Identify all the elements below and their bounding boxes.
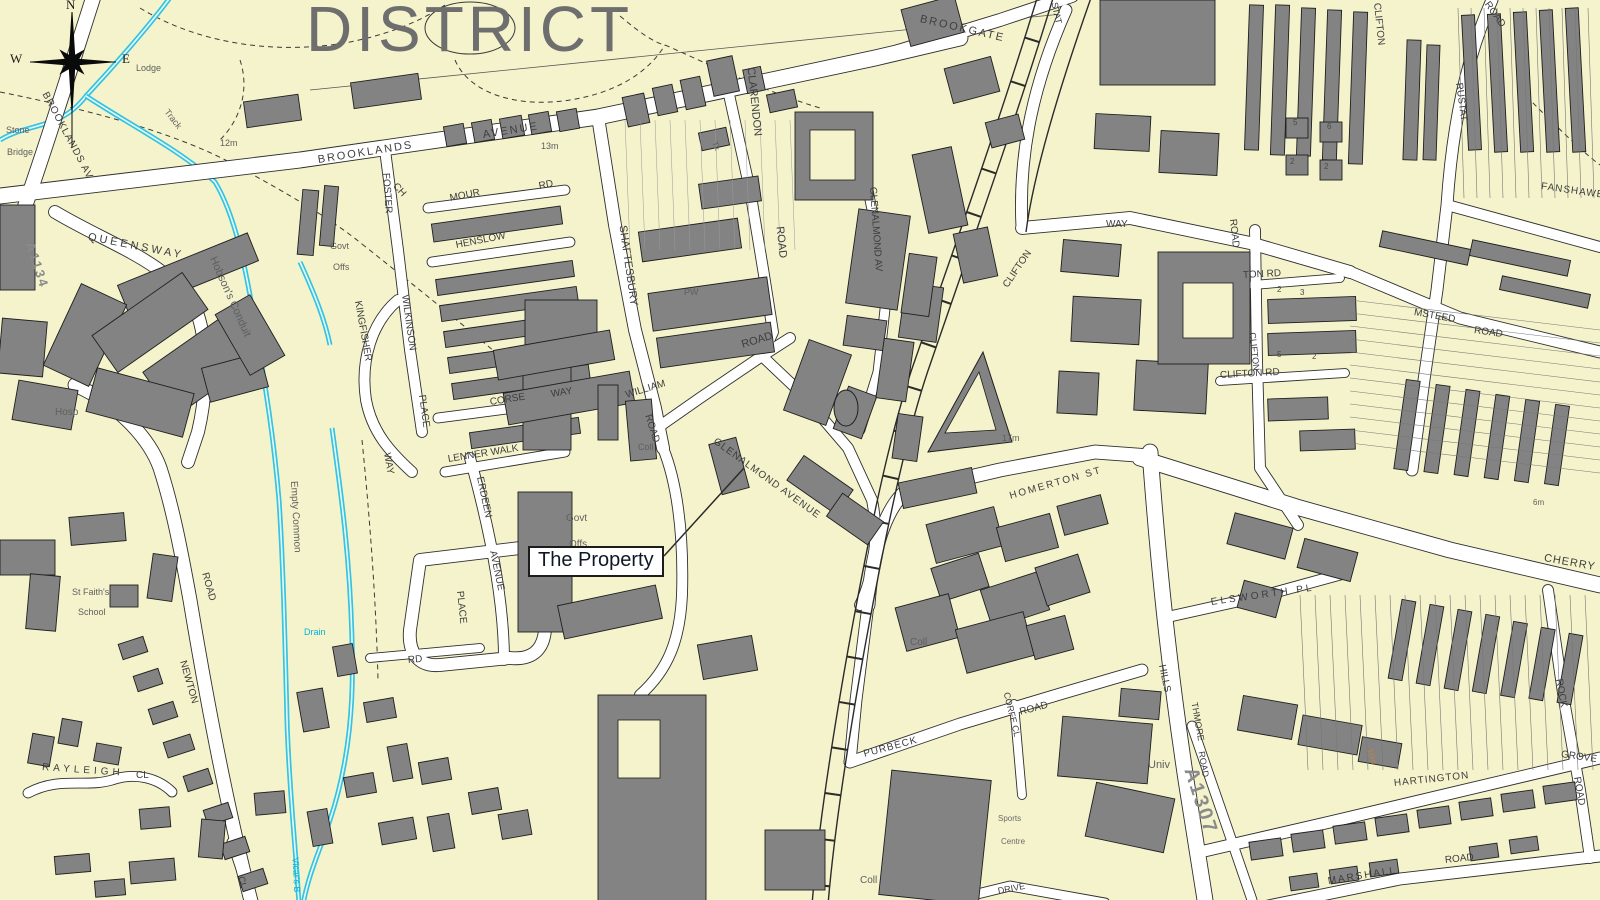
- compass-east-label: E: [122, 52, 130, 65]
- map-stage: BROOKLANDSAVENUEBROOKLANDS AVStoneBridge…: [0, 0, 1600, 900]
- property-callout[interactable]: The Property: [528, 546, 664, 577]
- compass-north-label: N: [66, 0, 75, 11]
- compass-west-label: W: [10, 52, 22, 65]
- map-canvas: [0, 0, 1600, 900]
- map-title: DISTRICT: [306, 0, 633, 66]
